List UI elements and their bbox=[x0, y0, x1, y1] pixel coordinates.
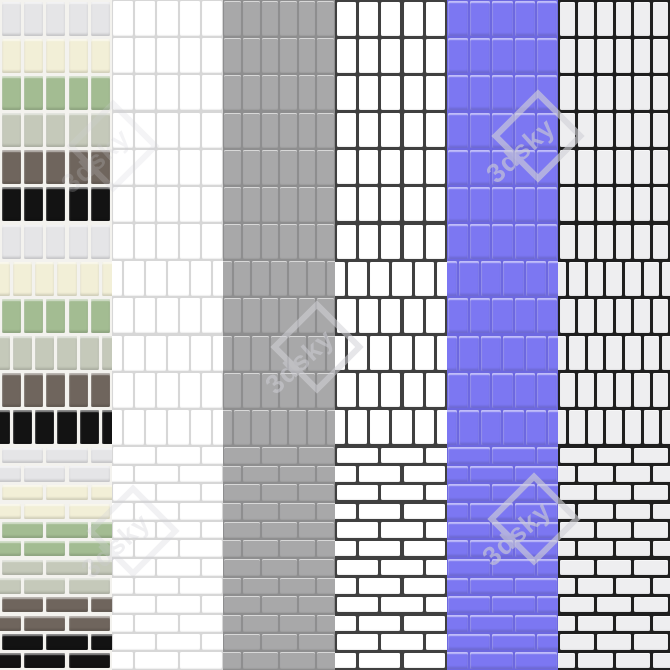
tile bbox=[113, 447, 156, 464]
tile bbox=[616, 466, 650, 482]
tile bbox=[24, 466, 66, 482]
tile bbox=[426, 597, 447, 613]
tile bbox=[46, 150, 65, 184]
tile bbox=[146, 410, 166, 445]
tile bbox=[578, 2, 594, 36]
tile bbox=[317, 540, 335, 557]
tile bbox=[337, 522, 379, 538]
swatch-stacked-grid-gray bbox=[223, 0, 335, 223]
tile bbox=[252, 261, 269, 296]
tile bbox=[558, 336, 566, 370]
tile bbox=[24, 653, 66, 669]
tile bbox=[24, 2, 43, 36]
tile bbox=[335, 410, 345, 444]
tile bbox=[644, 262, 660, 296]
tile bbox=[135, 1, 155, 36]
tile bbox=[180, 224, 200, 259]
tile bbox=[280, 1, 297, 36]
tile bbox=[644, 410, 660, 444]
tile bbox=[537, 373, 557, 408]
tile bbox=[262, 559, 297, 576]
tile bbox=[13, 262, 32, 296]
tile bbox=[69, 150, 88, 184]
tile bbox=[224, 522, 259, 539]
tile bbox=[560, 225, 576, 259]
tile bbox=[337, 76, 356, 110]
tile bbox=[13, 336, 32, 370]
tile bbox=[317, 113, 334, 148]
tile bbox=[569, 336, 585, 370]
tile bbox=[578, 504, 612, 520]
tile bbox=[337, 39, 356, 73]
tile bbox=[537, 522, 558, 539]
tile bbox=[597, 225, 613, 259]
tile bbox=[558, 653, 575, 669]
tile bbox=[515, 652, 558, 669]
tile bbox=[560, 299, 576, 333]
tile bbox=[578, 113, 594, 147]
tile bbox=[271, 336, 288, 371]
tile bbox=[2, 373, 21, 407]
tile bbox=[515, 503, 558, 520]
tile bbox=[112, 615, 133, 632]
tile bbox=[662, 410, 670, 444]
tile bbox=[262, 224, 279, 259]
tile bbox=[0, 336, 10, 370]
tile bbox=[262, 373, 279, 408]
tile bbox=[317, 578, 335, 595]
tile bbox=[299, 1, 316, 36]
tile bbox=[404, 299, 423, 333]
tile bbox=[46, 373, 65, 407]
tile bbox=[470, 1, 490, 36]
tile bbox=[180, 652, 223, 669]
tile bbox=[448, 187, 468, 222]
tile bbox=[392, 336, 411, 370]
tile bbox=[653, 187, 669, 221]
tile bbox=[597, 634, 631, 650]
tile bbox=[91, 634, 112, 650]
tile bbox=[223, 410, 231, 445]
tile bbox=[616, 616, 650, 632]
tile bbox=[537, 484, 558, 501]
tile bbox=[381, 113, 400, 147]
tile bbox=[634, 76, 650, 110]
tile bbox=[448, 484, 491, 501]
tile bbox=[448, 373, 468, 408]
tile bbox=[616, 187, 632, 221]
tile bbox=[597, 2, 613, 36]
tile bbox=[135, 373, 155, 408]
tile bbox=[537, 298, 557, 333]
tile bbox=[113, 634, 156, 651]
tile bbox=[616, 541, 650, 557]
tile bbox=[447, 410, 457, 445]
tile bbox=[224, 484, 259, 501]
tile bbox=[578, 466, 612, 482]
tile bbox=[448, 596, 491, 613]
tile bbox=[653, 466, 670, 482]
tile bbox=[404, 39, 423, 73]
tile bbox=[515, 187, 535, 222]
swatch-brick-bond-white-light-grout bbox=[112, 446, 224, 670]
tile bbox=[597, 150, 613, 184]
tile bbox=[437, 262, 447, 296]
tile bbox=[459, 336, 479, 371]
tile bbox=[262, 596, 297, 613]
tile bbox=[578, 616, 612, 632]
tile bbox=[202, 373, 222, 408]
tile bbox=[558, 578, 575, 594]
tile bbox=[46, 39, 65, 73]
tile bbox=[426, 448, 447, 464]
tile bbox=[35, 336, 54, 370]
tile bbox=[262, 75, 279, 110]
tile bbox=[359, 541, 401, 557]
tile bbox=[470, 187, 490, 222]
tile bbox=[337, 150, 356, 184]
tile bbox=[537, 113, 557, 148]
tile bbox=[102, 410, 112, 444]
tile bbox=[135, 466, 178, 483]
tile bbox=[327, 261, 335, 296]
tile bbox=[224, 373, 241, 408]
tile bbox=[262, 447, 297, 464]
swatch-vertical-offset-white-dark-grout bbox=[335, 223, 447, 446]
tile bbox=[280, 540, 315, 557]
tile bbox=[335, 653, 356, 669]
tile bbox=[653, 653, 670, 669]
tile bbox=[299, 298, 316, 333]
tile bbox=[653, 578, 670, 594]
tile bbox=[2, 76, 21, 110]
tile bbox=[135, 224, 155, 259]
tile bbox=[470, 373, 490, 408]
tile bbox=[578, 39, 594, 73]
tile bbox=[404, 541, 446, 557]
tile bbox=[526, 336, 546, 371]
tile bbox=[653, 541, 670, 557]
tile bbox=[180, 150, 200, 185]
tile bbox=[102, 262, 112, 296]
tile bbox=[337, 634, 379, 650]
tile bbox=[262, 187, 279, 222]
tile bbox=[2, 39, 21, 73]
tile bbox=[202, 298, 222, 333]
tile bbox=[415, 336, 434, 370]
tile bbox=[653, 616, 670, 632]
tile bbox=[616, 578, 650, 594]
tile bbox=[180, 615, 223, 632]
tile bbox=[280, 113, 297, 148]
tile bbox=[57, 336, 76, 370]
tile bbox=[426, 113, 445, 147]
tile bbox=[168, 261, 188, 296]
tile bbox=[481, 261, 501, 296]
tile bbox=[317, 652, 335, 669]
tile bbox=[317, 615, 335, 632]
tile bbox=[157, 1, 177, 36]
tile bbox=[653, 113, 669, 147]
tile bbox=[112, 261, 122, 296]
tile bbox=[0, 466, 21, 482]
tile bbox=[69, 225, 88, 259]
tile bbox=[91, 448, 112, 464]
tile bbox=[634, 485, 668, 501]
tile bbox=[262, 484, 297, 501]
tile bbox=[459, 261, 479, 296]
tile bbox=[448, 522, 491, 539]
tile bbox=[0, 541, 21, 557]
tile bbox=[503, 336, 523, 371]
tile bbox=[470, 615, 513, 632]
tile bbox=[616, 653, 650, 669]
tile bbox=[381, 448, 423, 464]
tile bbox=[492, 150, 512, 185]
tile bbox=[337, 597, 379, 613]
tile bbox=[69, 299, 88, 333]
tile bbox=[91, 522, 112, 538]
tile bbox=[280, 466, 315, 483]
tile bbox=[588, 336, 604, 370]
tile bbox=[515, 578, 558, 595]
tile bbox=[492, 484, 535, 501]
tile bbox=[280, 150, 297, 185]
tile bbox=[404, 653, 446, 669]
tile bbox=[537, 38, 557, 73]
tile bbox=[0, 504, 21, 520]
tile bbox=[470, 298, 490, 333]
tile bbox=[597, 560, 631, 576]
tile bbox=[437, 336, 447, 370]
tile bbox=[271, 261, 288, 296]
tile bbox=[348, 262, 367, 296]
tile bbox=[234, 410, 251, 445]
tile bbox=[202, 75, 222, 110]
tile bbox=[337, 485, 379, 501]
tile bbox=[404, 150, 423, 184]
tile bbox=[448, 113, 468, 148]
tile bbox=[280, 38, 297, 73]
tile bbox=[202, 1, 222, 36]
tile bbox=[252, 410, 269, 445]
tile bbox=[515, 224, 535, 259]
tile bbox=[224, 298, 241, 333]
tile bbox=[135, 113, 155, 148]
tile bbox=[180, 113, 200, 148]
tile bbox=[448, 38, 468, 73]
tile bbox=[46, 522, 88, 538]
tile bbox=[135, 503, 178, 520]
tile bbox=[415, 410, 434, 444]
tile bbox=[317, 298, 334, 333]
tile bbox=[57, 262, 76, 296]
tile bbox=[537, 75, 557, 110]
tile bbox=[262, 150, 279, 185]
tile bbox=[113, 1, 133, 36]
tile bbox=[470, 540, 513, 557]
tile bbox=[597, 76, 613, 110]
tile bbox=[308, 261, 325, 296]
tile bbox=[359, 299, 378, 333]
tile bbox=[299, 113, 316, 148]
tile bbox=[180, 503, 223, 520]
tile bbox=[224, 224, 241, 259]
tile bbox=[91, 485, 112, 501]
tile bbox=[168, 410, 188, 445]
tile bbox=[448, 447, 491, 464]
tile bbox=[0, 578, 21, 594]
tile bbox=[202, 38, 222, 73]
swatch-vertical-offset-gray bbox=[223, 223, 335, 446]
tile bbox=[280, 187, 297, 222]
tile bbox=[243, 298, 260, 333]
tile bbox=[299, 484, 334, 501]
tile bbox=[560, 373, 576, 407]
tile bbox=[224, 447, 259, 464]
tile bbox=[299, 187, 316, 222]
tile bbox=[180, 1, 200, 36]
tile bbox=[135, 298, 155, 333]
tile bbox=[359, 466, 401, 482]
tile bbox=[578, 225, 594, 259]
tile bbox=[24, 225, 43, 259]
tile bbox=[91, 2, 110, 36]
tile bbox=[616, 113, 632, 147]
tile bbox=[616, 373, 632, 407]
tile bbox=[560, 448, 594, 464]
tile bbox=[560, 150, 576, 184]
tile bbox=[69, 466, 111, 482]
tile bbox=[157, 373, 177, 408]
tile bbox=[213, 336, 223, 371]
tile bbox=[560, 187, 576, 221]
tile bbox=[299, 596, 334, 613]
tile bbox=[515, 540, 558, 557]
tile bbox=[359, 373, 378, 407]
tile bbox=[157, 484, 200, 501]
tile bbox=[337, 373, 356, 407]
tile bbox=[634, 113, 650, 147]
tile bbox=[381, 39, 400, 73]
tile bbox=[335, 336, 345, 370]
tile bbox=[606, 410, 622, 444]
tile bbox=[202, 596, 223, 613]
tile bbox=[2, 187, 21, 221]
tile bbox=[2, 634, 44, 650]
tile bbox=[653, 76, 669, 110]
tile bbox=[515, 113, 535, 148]
tile bbox=[558, 541, 575, 557]
tile bbox=[2, 150, 21, 184]
tile bbox=[243, 652, 278, 669]
tile bbox=[392, 262, 411, 296]
tile bbox=[381, 485, 423, 501]
tile bbox=[243, 615, 278, 632]
tile bbox=[634, 373, 650, 407]
tile bbox=[135, 652, 178, 669]
swatch-vertical-offset-multicolor-mosaic bbox=[0, 223, 112, 446]
tile bbox=[46, 2, 65, 36]
tile bbox=[243, 578, 278, 595]
tile bbox=[112, 466, 133, 483]
tile bbox=[280, 224, 297, 259]
tile bbox=[381, 299, 400, 333]
tile bbox=[616, 76, 632, 110]
tile bbox=[560, 634, 594, 650]
tile bbox=[515, 38, 535, 73]
tile bbox=[578, 150, 594, 184]
tile bbox=[597, 373, 613, 407]
tile bbox=[262, 113, 279, 148]
tile bbox=[359, 150, 378, 184]
tile bbox=[135, 578, 178, 595]
tile bbox=[470, 75, 490, 110]
tile bbox=[223, 261, 231, 296]
tile bbox=[91, 597, 112, 613]
tile bbox=[46, 485, 88, 501]
tile bbox=[280, 373, 297, 408]
tile bbox=[112, 578, 133, 595]
tile bbox=[426, 485, 447, 501]
tile bbox=[24, 504, 66, 520]
tile bbox=[24, 578, 66, 594]
tile bbox=[597, 187, 613, 221]
tile bbox=[492, 38, 512, 73]
tile bbox=[191, 336, 211, 371]
tile bbox=[381, 187, 400, 221]
tile bbox=[335, 504, 356, 520]
tile bbox=[415, 262, 434, 296]
tile bbox=[515, 373, 535, 408]
tile bbox=[91, 76, 110, 110]
tile bbox=[606, 262, 622, 296]
tile bbox=[2, 113, 21, 147]
tile bbox=[447, 261, 457, 296]
tile bbox=[337, 448, 379, 464]
tile bbox=[157, 150, 177, 185]
tile bbox=[124, 261, 144, 296]
tile bbox=[202, 447, 223, 464]
tile bbox=[404, 466, 446, 482]
tile bbox=[299, 150, 316, 185]
tile bbox=[447, 503, 468, 520]
tile bbox=[202, 484, 223, 501]
tile bbox=[634, 522, 668, 538]
swatch-brick-bond-offwhite-black-grout bbox=[558, 446, 670, 670]
tile bbox=[223, 336, 231, 371]
tile bbox=[560, 39, 576, 73]
tile bbox=[224, 634, 259, 651]
tile bbox=[653, 150, 669, 184]
tile bbox=[223, 503, 241, 520]
tile bbox=[588, 410, 604, 444]
tile bbox=[359, 653, 401, 669]
tile bbox=[381, 522, 423, 538]
swatch-brick-bond-blue-violet bbox=[447, 446, 559, 670]
tile bbox=[634, 39, 650, 73]
tile bbox=[24, 76, 43, 110]
tile bbox=[335, 578, 356, 594]
tile bbox=[80, 410, 99, 444]
tile bbox=[548, 261, 558, 296]
tile bbox=[597, 485, 631, 501]
tile bbox=[370, 410, 389, 444]
tile bbox=[135, 75, 155, 110]
tile bbox=[426, 150, 445, 184]
tile bbox=[299, 522, 334, 539]
tile bbox=[2, 225, 21, 259]
